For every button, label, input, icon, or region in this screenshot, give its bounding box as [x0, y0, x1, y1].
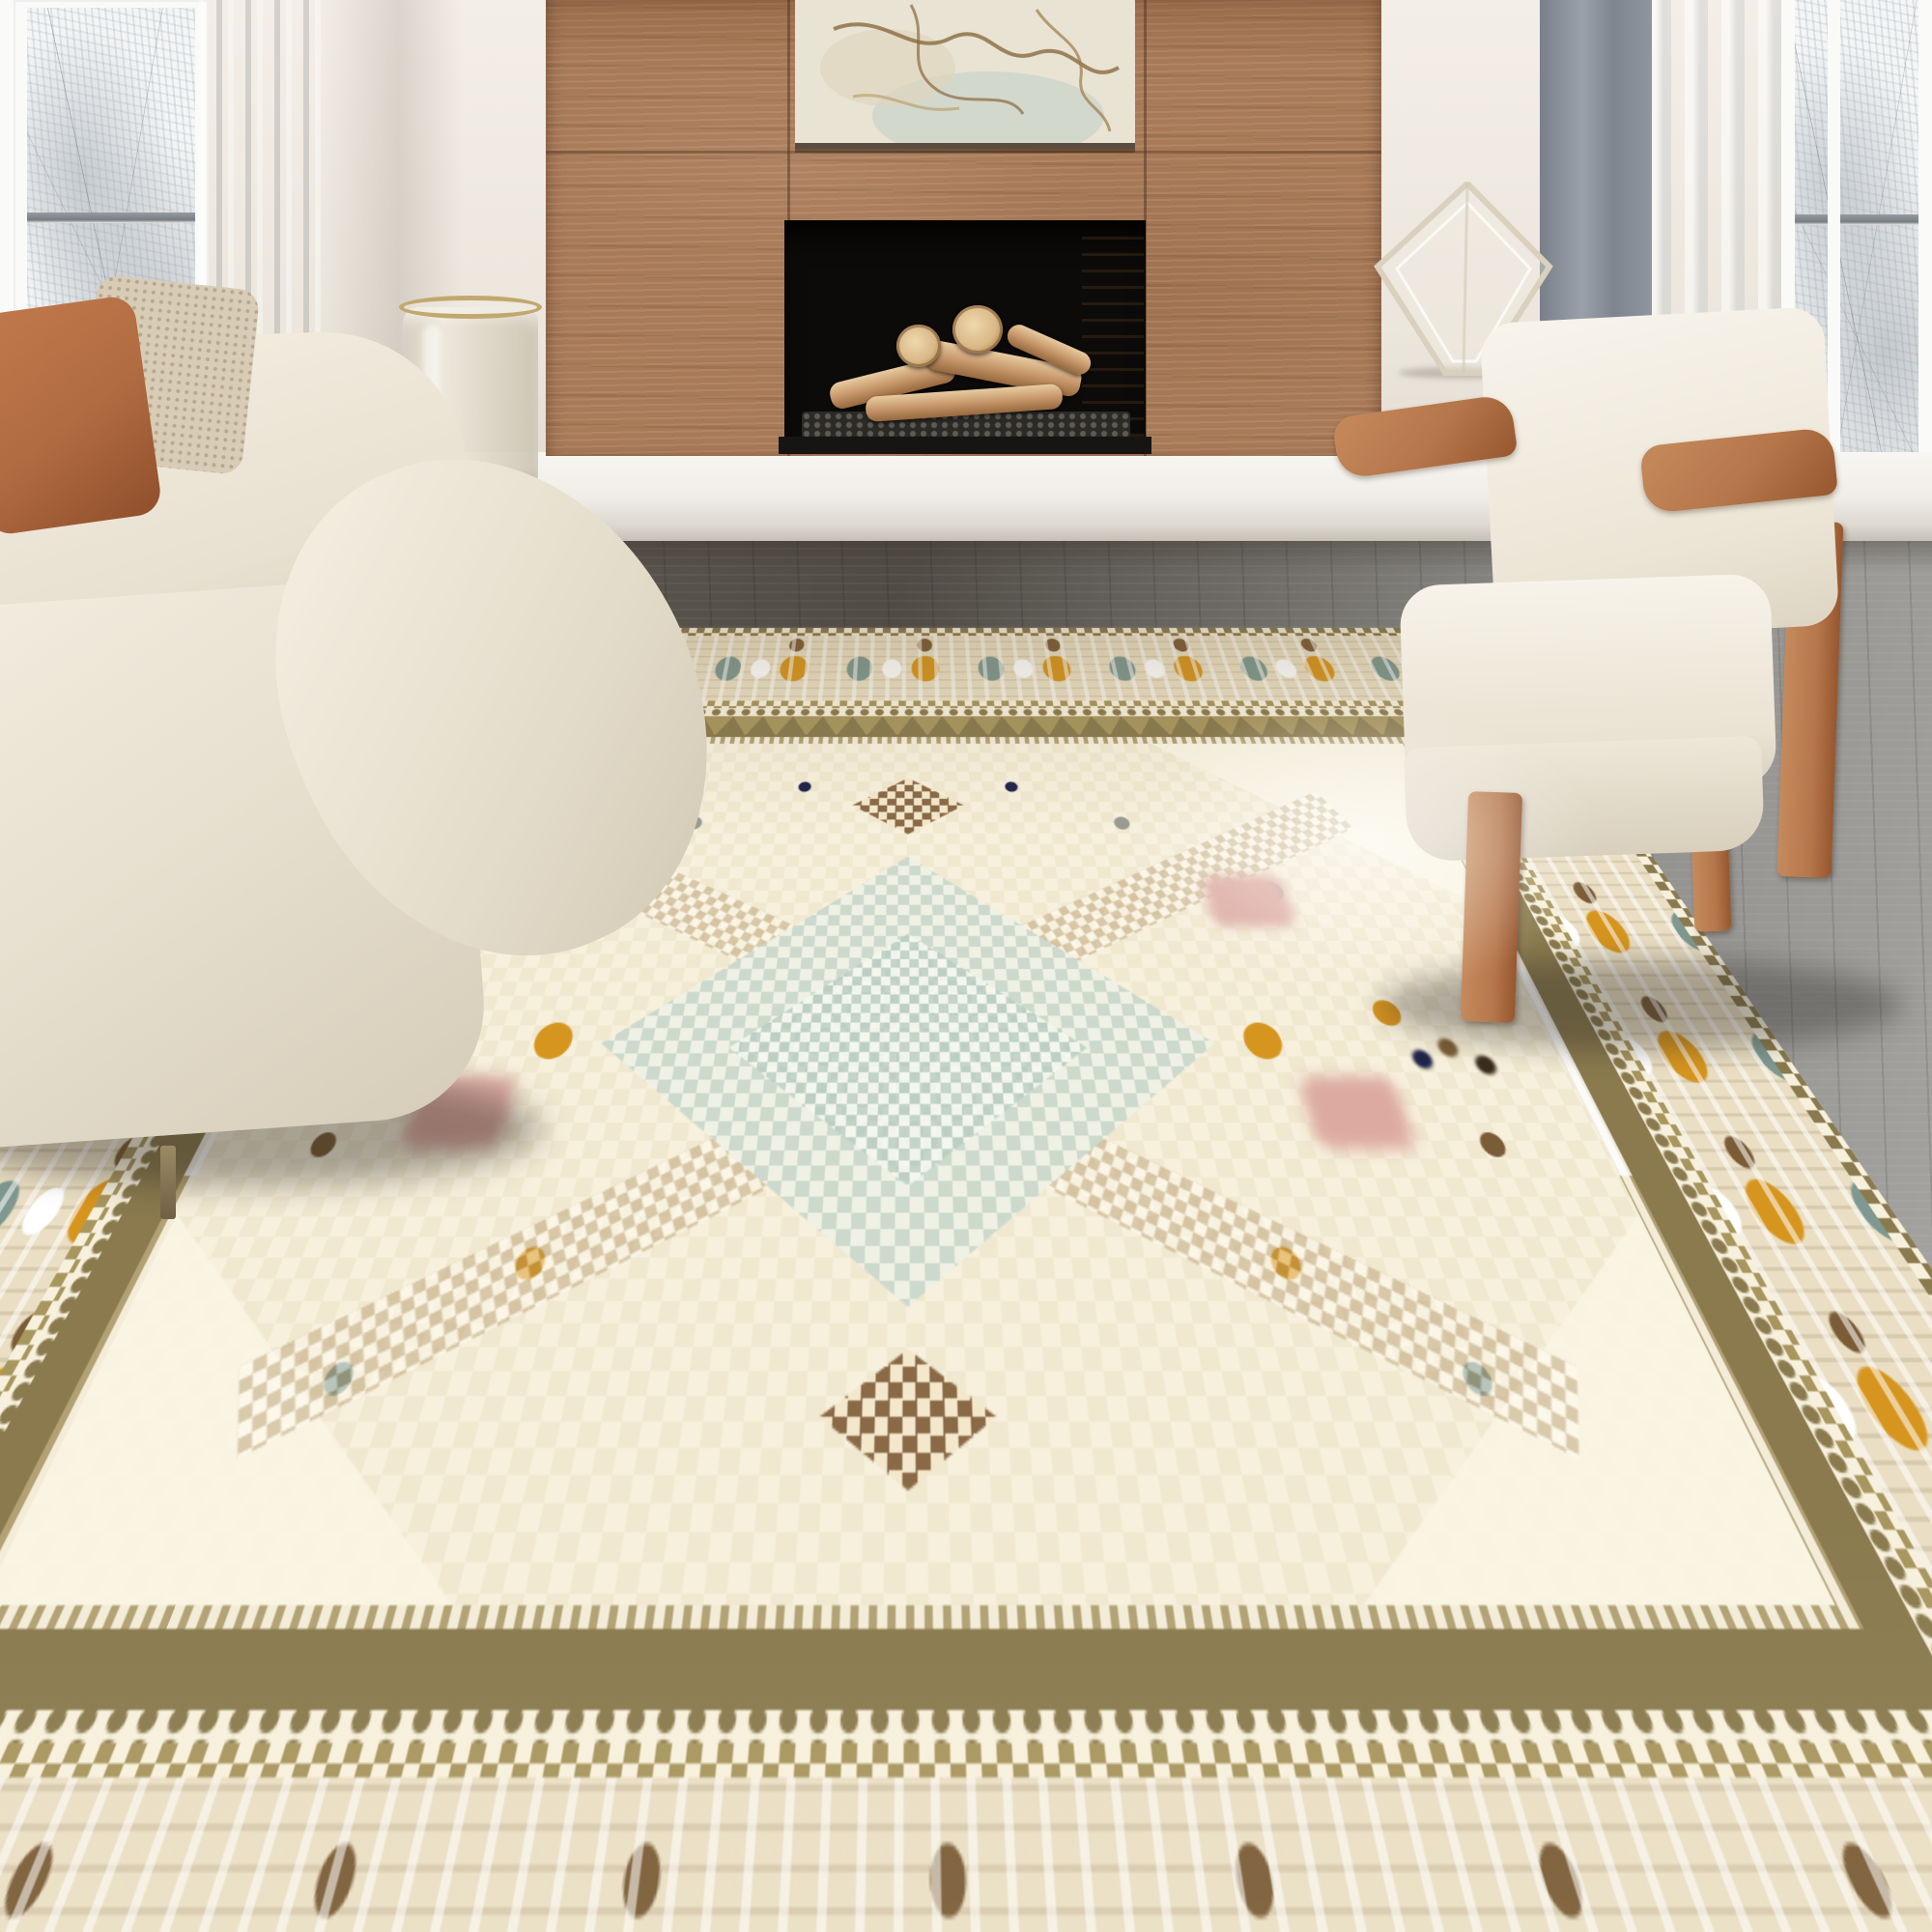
sofa-leg	[160, 1146, 176, 1219]
armchair-seat-front	[1404, 736, 1765, 863]
firebox-brick-wall	[1082, 224, 1144, 437]
right-window-sash	[1795, 214, 1920, 225]
firewood-log-end	[896, 325, 941, 367]
firewood-log-end	[952, 305, 1003, 354]
vase-brass-rim	[399, 296, 542, 319]
firebox-plinth	[779, 437, 1151, 454]
armchair-shadow	[1381, 958, 1903, 1051]
living-room-photo	[0, 0, 1932, 1932]
artwork-canvas-texture	[795, 0, 1135, 149]
armchair-front-leg	[1461, 791, 1522, 1023]
abstract-artwork	[795, 0, 1135, 149]
wood-panel-seam	[546, 151, 1381, 154]
left-window-sash	[27, 213, 195, 223]
fire-pebbles	[802, 412, 1130, 439]
